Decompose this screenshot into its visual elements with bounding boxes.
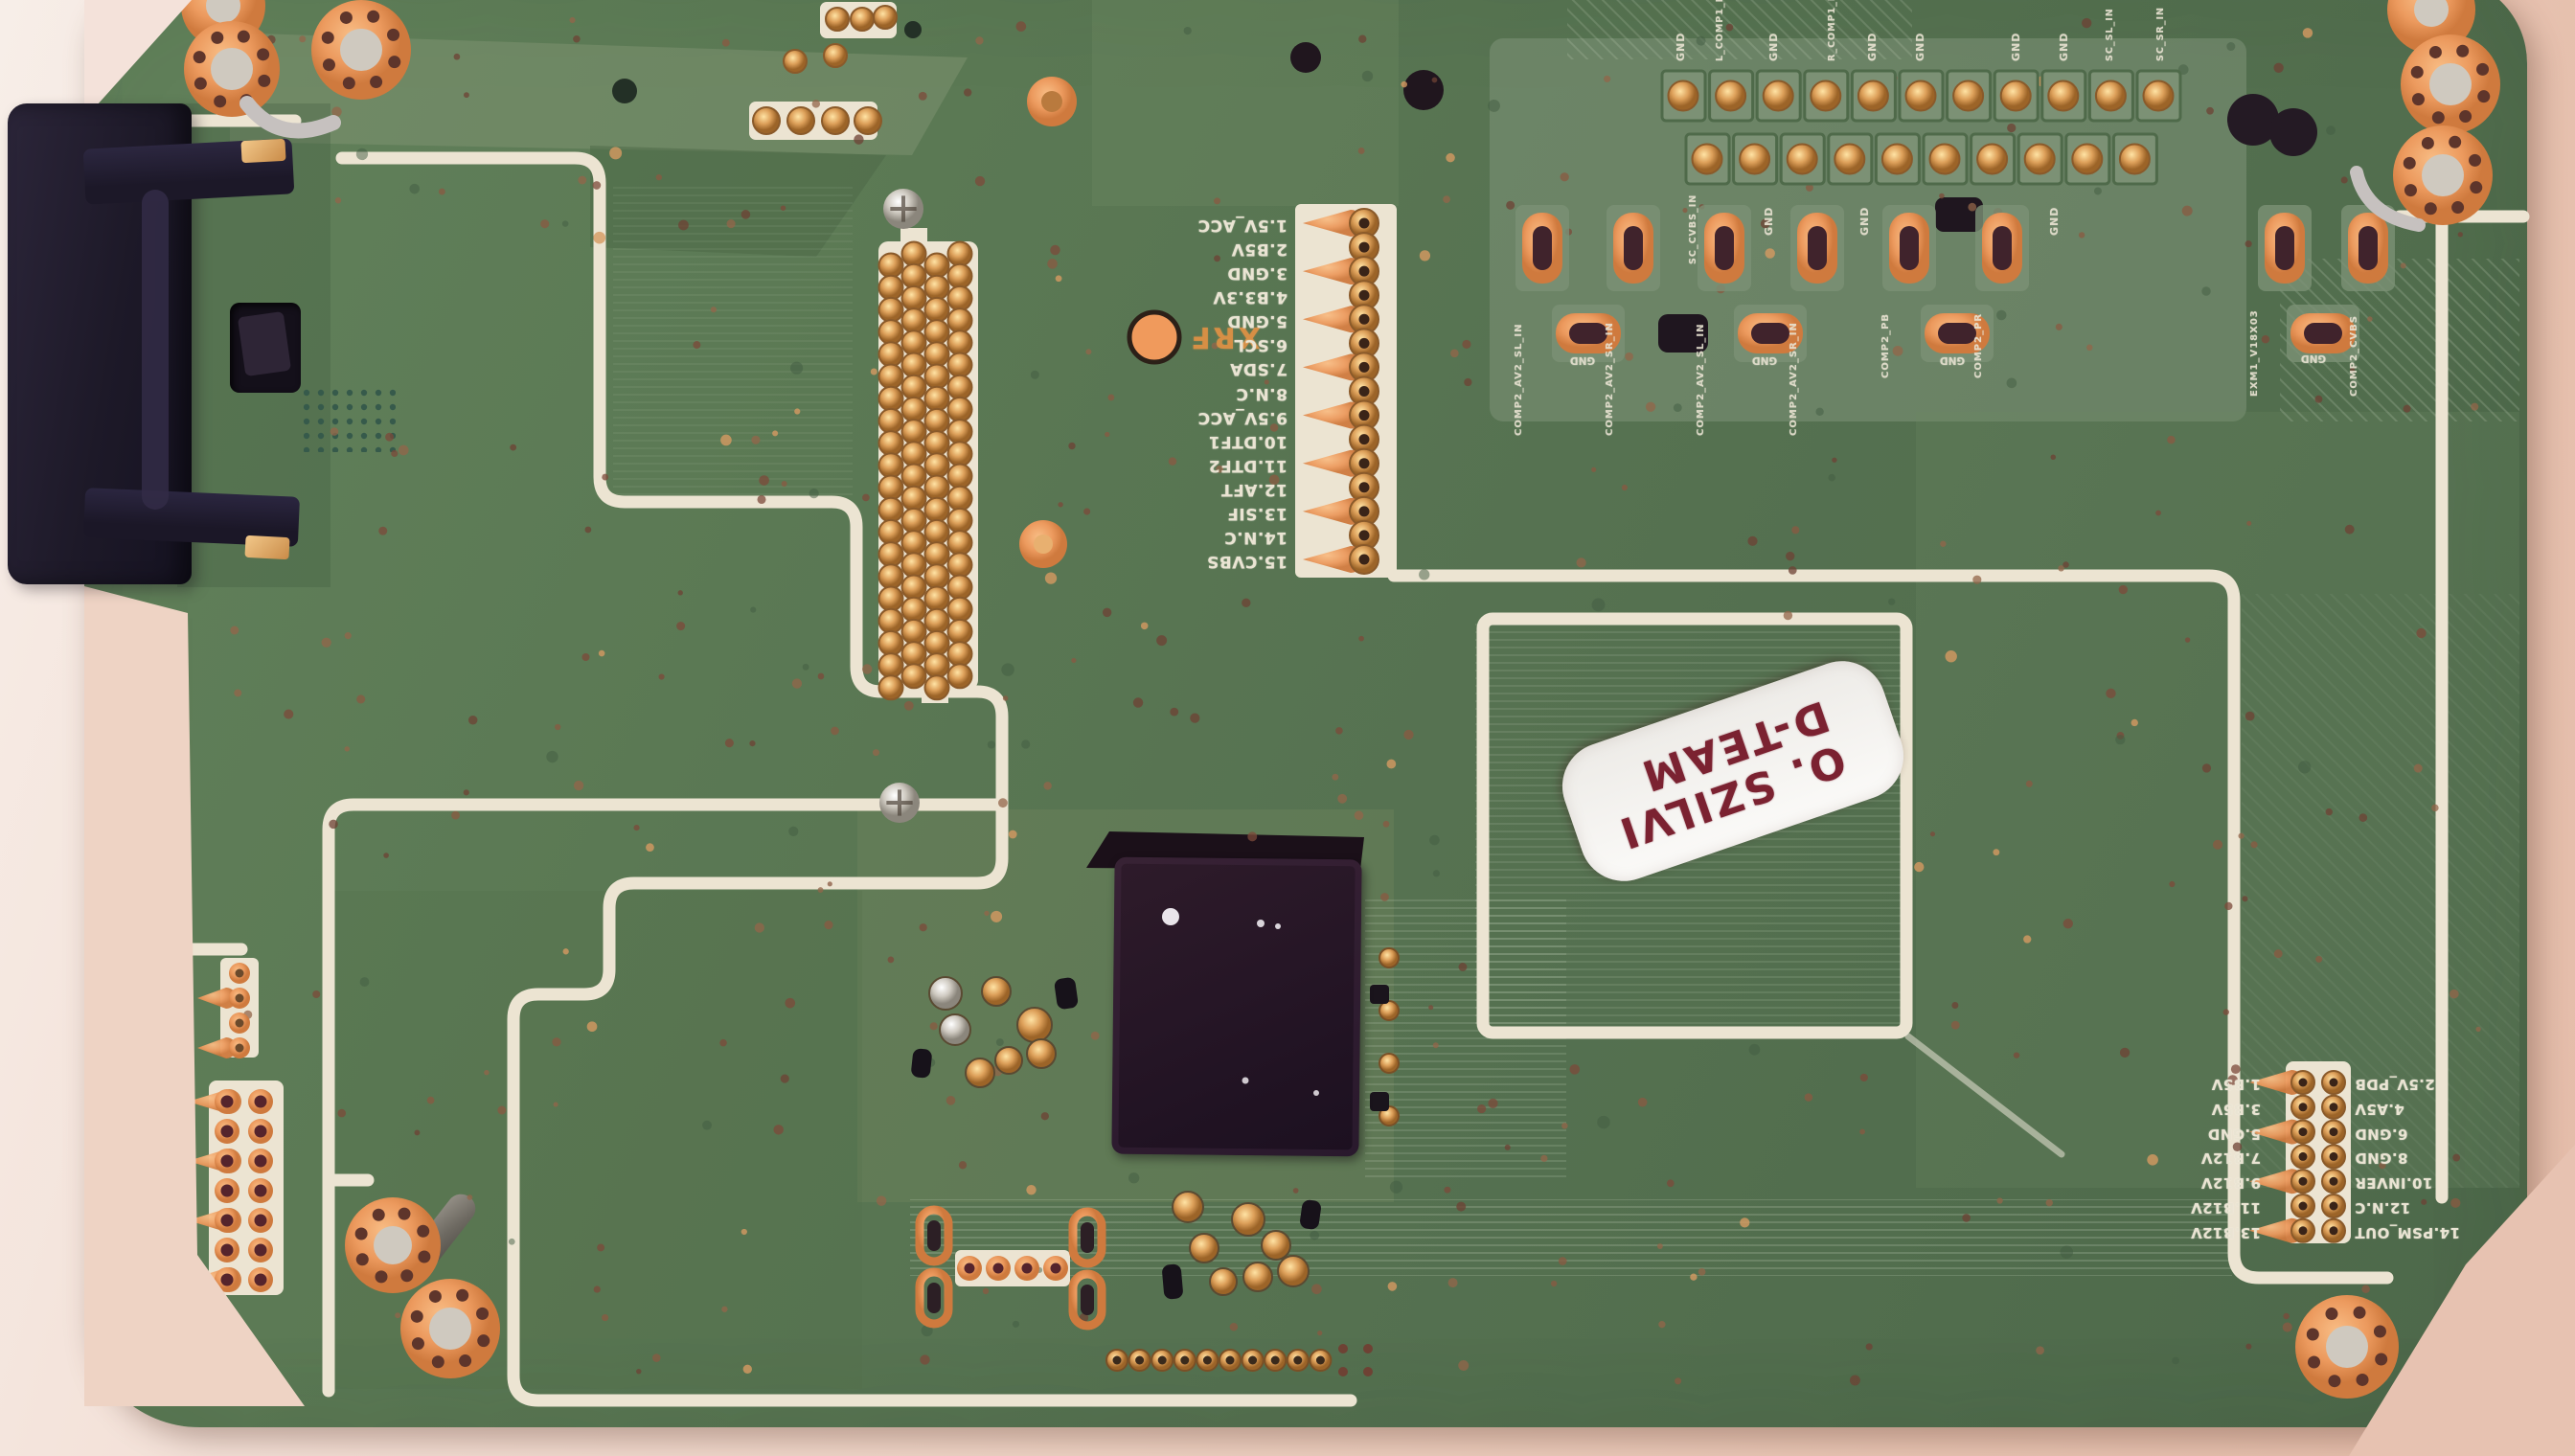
tuner-pin-label: 6.SCL [1186, 331, 1287, 354]
tuner-pin-label: 12.AFT [1186, 476, 1287, 499]
comp-oval-label: COMP2_AV2_SL_IN [1514, 275, 1524, 436]
gnd-label: GND [1931, 354, 1973, 366]
power-pin-label: 4.A5V [2355, 1097, 2498, 1118]
power-pin-label: 1.B5V [2153, 1072, 2261, 1093]
gnd-tick: GND [2048, 201, 2061, 236]
power-pin-label: 7.B12V [2153, 1146, 2261, 1167]
tuner-pin-label: 11.DTF2 [1186, 452, 1287, 475]
tuner-pin-label: 3.GND [1186, 260, 1287, 283]
tuner-pin-label: 7.SDA [1186, 355, 1287, 378]
gnd-label: GND [1743, 354, 1786, 366]
power-pin-label: 3.B5V [2153, 1097, 2261, 1118]
gnd-tick: GND [1866, 25, 1879, 61]
power-pin-label: 8.GND [2355, 1146, 2498, 1167]
power-pin-label: 12.N.C [2355, 1195, 2498, 1217]
av-pad-label: SC_SR_IN [2155, 0, 2166, 61]
comp-oval-label: COMP2_AV2_SR_IN [1789, 275, 1799, 436]
av-pad-label: R_COMP1_IN [1827, 0, 1837, 61]
gnd-tick: GND [1767, 25, 1780, 61]
tuner-pin-label: 9.5V_ACC [1186, 404, 1287, 427]
tuner-pin-label: 15.CVBS [1186, 548, 1287, 571]
gnd-tick: GND [2010, 25, 2022, 61]
pcb-cutout [230, 303, 301, 393]
power-pin-label: 9.B12V [2153, 1171, 2261, 1192]
gnd-label: GND [1561, 354, 1604, 366]
bracket-solder-tab [244, 535, 289, 559]
tuner-pin-label: 4.B3.3V [1186, 284, 1287, 307]
tuner-pin-label: 1.5V_ACC [1186, 212, 1287, 235]
power-pin-label: 14.PSM_OUT [2355, 1220, 2498, 1241]
photo-scene: O. SZILVI D-TEAM XRF 1.5V_ACC 2.B5V 3.GN… [0, 0, 2575, 1456]
tuner-pin-label: 8.N.C [1186, 380, 1287, 403]
tuner-pin-label: 13.SIF [1186, 500, 1287, 523]
power-pin-label: 10.INVER [2355, 1171, 2498, 1192]
gnd-tick: GND [1675, 25, 1687, 61]
power-pin-label: 6.GND [2355, 1122, 2498, 1143]
gnd-tick: GND [2058, 25, 2070, 61]
gnd-tick: GND [1858, 201, 1871, 236]
gnd-tick: GND [1914, 25, 1926, 61]
tuner-pin-label: 5.GND [1186, 307, 1287, 330]
power-pin-label: 5.GND [2153, 1122, 2261, 1143]
power-pin-label: 2.5V_PDB [2355, 1072, 2498, 1093]
comp-oval-label: COMP2_PB [1880, 271, 1891, 378]
av-pad-label: SC_SL_IN [2105, 0, 2115, 61]
bracket-rod [142, 190, 169, 510]
gnd-tick: GND [1763, 201, 1775, 236]
comp-oval-label: COMP2_AV2_SR_IN [1605, 275, 1615, 436]
power-pin-label: 13.B12V [2153, 1220, 2261, 1241]
tuner-pin-label: 2.B5V [1186, 236, 1287, 259]
comp-oval-label: COMP2_AV2_SL_IN [1696, 275, 1706, 436]
ic-thermal-pad [1111, 857, 1361, 1157]
comp-oval-label: COMP2_CVBS [2349, 270, 2359, 397]
cutout-component [238, 311, 291, 376]
power-pin-label: 11.B12V [2153, 1195, 2261, 1217]
comp-oval-label: COMP2_PR [1973, 271, 1984, 378]
av-pad-label: SC_CVBS_IN [1688, 197, 1698, 264]
av-pad-label: L_COMP1_IN [1715, 0, 1725, 61]
board-version-label: EXM1_V18X03 [2249, 270, 2260, 397]
gnd-label: GND [2292, 353, 2335, 364]
bracket-solder-tab [240, 139, 285, 163]
tuner-pin-label: 10.DTF1 [1186, 428, 1287, 451]
tuner-pin-label: 14.N.C [1186, 524, 1287, 547]
